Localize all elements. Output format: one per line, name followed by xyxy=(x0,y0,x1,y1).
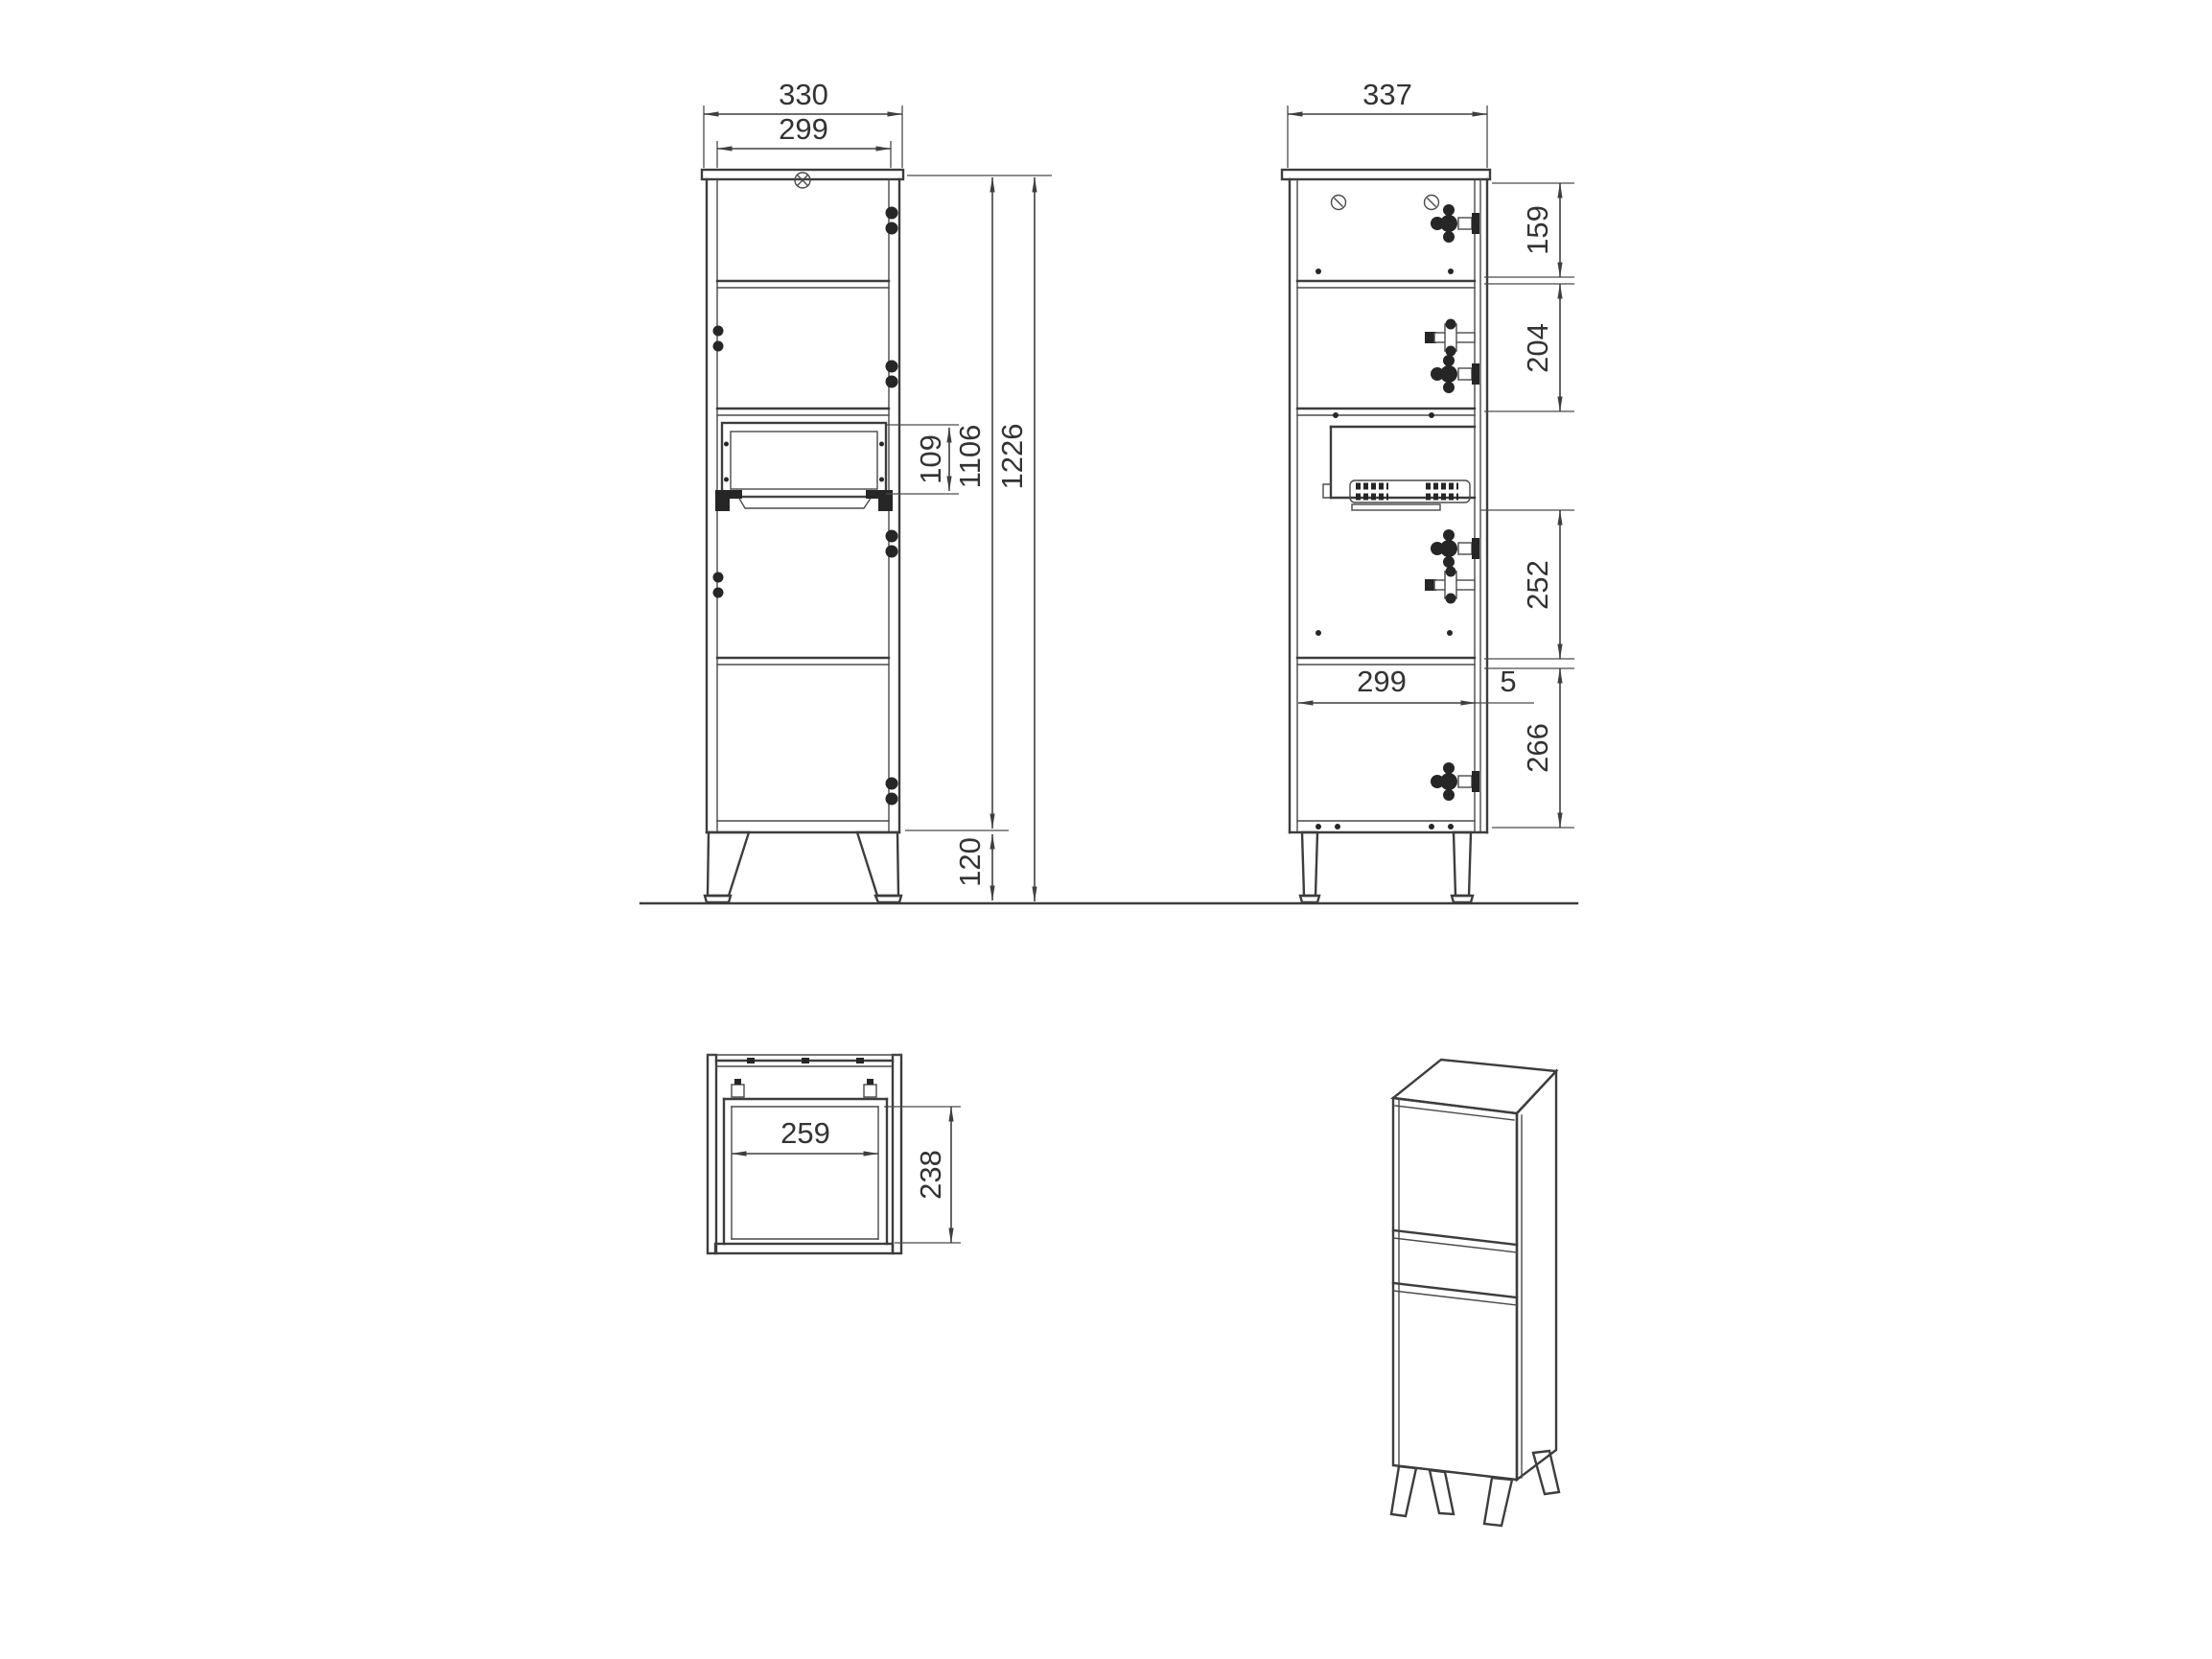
niche-bracket-right xyxy=(866,490,893,511)
side-legs xyxy=(1300,832,1473,902)
hinge-arm-1 xyxy=(1431,204,1479,243)
dim-front-niche-height: 109 xyxy=(914,434,947,484)
top-right-panel xyxy=(893,1055,901,1253)
perspective-front-face xyxy=(1393,1098,1517,1480)
dim-top-opening-width: 259 xyxy=(780,1116,830,1150)
side-top-panel xyxy=(1282,170,1490,179)
perspective-top-face xyxy=(1393,1060,1556,1113)
top-view-dimensions: 259 238 xyxy=(732,1107,961,1243)
hinge-plate-upper xyxy=(1425,319,1475,357)
dim-front-leg-height: 120 xyxy=(953,837,987,887)
dim-side-door-gap: 5 xyxy=(1500,665,1516,698)
hinge-arm-2 xyxy=(1431,355,1479,393)
front-open-niche xyxy=(715,423,893,511)
dim-front-carcass-height: 1106 xyxy=(953,425,987,489)
dim-side-section-3: 252 xyxy=(1521,560,1554,610)
front-carcass xyxy=(707,179,899,832)
niche-flap xyxy=(738,497,872,508)
perspective-legs xyxy=(1391,1451,1559,1526)
front-top-panel xyxy=(702,170,903,179)
side-view xyxy=(1282,170,1490,902)
perspective-door-gaps xyxy=(1393,1230,1517,1305)
top-left-panel xyxy=(708,1055,716,1253)
side-open-niche xyxy=(1323,427,1475,510)
top-hinge-clips xyxy=(732,1079,876,1097)
side-carcass xyxy=(1290,179,1487,832)
dim-front-outer-width: 330 xyxy=(779,78,828,111)
top-door-front xyxy=(715,1244,893,1253)
dim-side-depth: 337 xyxy=(1362,78,1412,111)
front-legs xyxy=(705,832,901,902)
hinge-arm-3 xyxy=(1431,529,1479,568)
dim-side-section-1: 159 xyxy=(1521,205,1554,255)
top-back-panel xyxy=(716,1058,893,1066)
perspective-view xyxy=(1391,1060,1559,1526)
front-shelf-lines xyxy=(717,281,889,665)
dim-side-section-2: 204 xyxy=(1521,323,1554,373)
dim-side-section-4: 266 xyxy=(1521,723,1554,773)
front-view xyxy=(702,170,903,902)
perspective-side-face xyxy=(1517,1071,1556,1480)
drawing-canvas: 330 299 109 1106 1226 120 xyxy=(0,0,2212,1659)
hinge-plate-lower xyxy=(1425,567,1475,604)
dim-top-opening-depth: 238 xyxy=(914,1150,947,1200)
dim-side-interior-depth: 299 xyxy=(1357,665,1407,698)
side-screws xyxy=(1332,196,1439,210)
dim-front-total-height: 1226 xyxy=(995,424,1029,490)
technical-drawing: 330 299 109 1106 1226 120 xyxy=(0,0,2212,1659)
niche-bracket-left xyxy=(715,490,742,511)
dim-front-inner-width: 299 xyxy=(779,112,828,146)
hinge-arm-4 xyxy=(1431,762,1479,801)
